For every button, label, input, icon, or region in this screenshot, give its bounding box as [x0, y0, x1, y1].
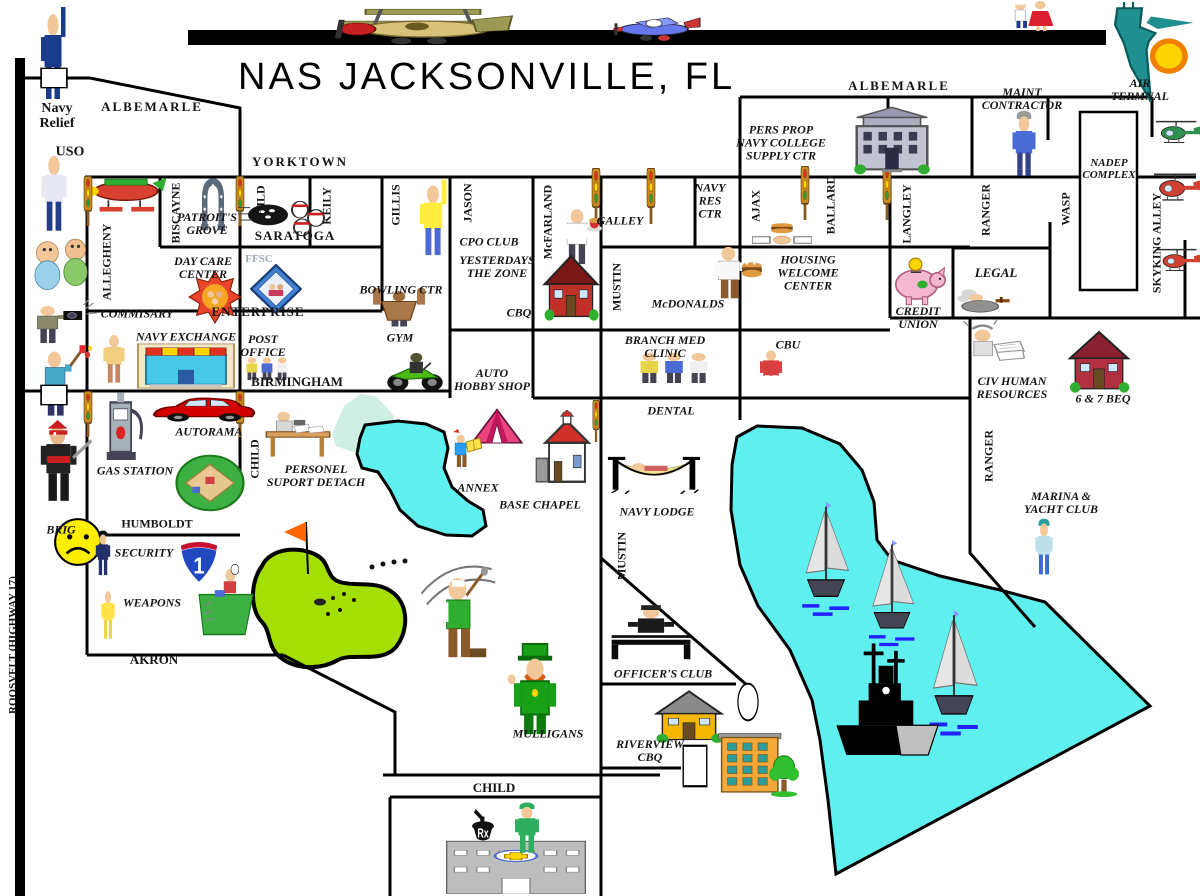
- label-ranger-2: RANGER: [983, 430, 996, 482]
- gate-north-icon: [40, 67, 68, 89]
- label-ballard: BALLARD: [825, 176, 838, 235]
- label-bowling-ctr: BOWLING CTR: [359, 284, 442, 297]
- traffic-light-5-icon: [795, 166, 815, 220]
- marina-sailor-icon: [1026, 518, 1062, 578]
- label-dental: DENTAL: [647, 405, 694, 418]
- label-beq: 6 & 7 BEQ: [1075, 393, 1130, 406]
- label-albemarle-right: ALBEMARLE: [848, 79, 950, 93]
- golf-hole: [314, 599, 326, 606]
- label-gillis: GILLIS: [390, 184, 403, 225]
- legal-judge-icon: [948, 284, 1018, 320]
- cbq-house-icon: [541, 252, 601, 322]
- golfer-icon: [416, 556, 506, 666]
- gas-pump-icon: [94, 388, 152, 468]
- nadep-complex-building: [1080, 112, 1137, 290]
- label-wasp: WASP: [1060, 192, 1073, 225]
- label-humboldt: HUMBOLDT: [121, 518, 192, 531]
- label-riverview: RIVERVIEW CBQ: [616, 738, 684, 764]
- tree-icon: [762, 750, 806, 798]
- label-base-chapel: BASE CHAPEL: [499, 499, 581, 512]
- label-mcfarland: McFARLAND: [542, 185, 555, 259]
- label-credit-union: CREDIT UNION: [896, 305, 941, 331]
- label-child-bottom: CHILD: [473, 781, 516, 795]
- label-keily: KEILY: [321, 187, 334, 225]
- label-officers-club: OFFICER'S CLUB: [614, 668, 712, 681]
- beq-house-icon: [1066, 328, 1132, 394]
- uso-sailor-icon: [28, 148, 80, 236]
- security-policeman-icon: [88, 530, 118, 578]
- pond-oval-icon: [736, 682, 760, 722]
- chapel-church-icon: [535, 410, 599, 488]
- label-civ-hr: CIV HUMAN RESOURCES: [977, 375, 1048, 401]
- label-ajax: AJAX: [750, 190, 763, 222]
- gate-south-icon: [40, 384, 68, 406]
- horseshoe-player-icon: [406, 178, 460, 260]
- label-maint-contractor: MAINT CONTRACTOR: [982, 86, 1062, 112]
- label-air-termnal: AIR TERMNAL: [1110, 77, 1170, 103]
- label-akron: AKRON: [130, 653, 178, 667]
- label-saratoga: SARATOGA: [255, 229, 335, 243]
- pond-rect-icon: [681, 744, 709, 788]
- label-marina: MARINA & YACHT CLUB: [1024, 490, 1098, 516]
- credit-union-piggy-icon: [890, 252, 948, 308]
- lodge-hammock-icon: [606, 446, 702, 498]
- label-galley: GALLEY: [597, 215, 644, 228]
- label-child-mid: CHILD: [249, 439, 262, 478]
- label-nadep-complex: NADEP COMPLEX: [1082, 158, 1135, 182]
- annex-camper-icon: [444, 428, 490, 478]
- battleship-icon: [824, 636, 948, 760]
- label-jason: JASON: [462, 183, 475, 222]
- label-navy-lodge: NAVY LODGE: [620, 506, 695, 519]
- base-map: NAS JACKSONVILLE, FL Navy ReliefUSOALBEM…: [0, 0, 1200, 896]
- blue-plane-icon: [606, 4, 706, 50]
- sailboat-2-icon: [860, 540, 924, 650]
- sailboat-1-icon: [793, 502, 859, 620]
- label-gym: GYM: [387, 332, 414, 345]
- helicopter-1-icon: [1154, 118, 1200, 154]
- commissary-shopper-icon: [92, 330, 136, 386]
- label-autorama: AUTORAMA: [175, 426, 242, 439]
- label-mustin-2: MUSTIN: [616, 532, 629, 580]
- weapons-guard-icon: [94, 586, 122, 642]
- label-navy-relief: Navy Relief: [40, 101, 75, 131]
- label-patriots-grove: PATROIT'S GROVE: [177, 211, 237, 237]
- navy-exchange-store-icon: [136, 342, 236, 390]
- navy-officer-icon: [28, 5, 78, 105]
- label-security: SECURITY: [115, 547, 174, 560]
- college-building-icon: [850, 106, 934, 178]
- mulligans-leprechaun-icon: [496, 642, 574, 740]
- label-post-office: POST OFFICE: [240, 333, 285, 359]
- cbu-cheerleader-icon: [748, 346, 794, 394]
- label-allegheny: ALLEGHENY: [101, 224, 114, 301]
- label-weapons: WEAPONS: [123, 597, 181, 610]
- sailor-couple-icon: [998, 0, 1064, 50]
- label-yesterdays: YESTERDAYS THE ZONE: [459, 254, 534, 280]
- motorcycle-icon: [382, 344, 448, 396]
- label-roosevelt-hwy: ROOSVELT (HIGHWAY 17): [8, 576, 20, 714]
- ballfield-slider-icon: [198, 562, 254, 636]
- hr-thinker-icon: [958, 320, 1030, 376]
- label-cbu: CBU: [776, 339, 801, 352]
- label-langley: LANGLEY: [901, 184, 914, 243]
- maint-worker-icon: [1000, 110, 1048, 180]
- label-child-top: CHILD: [255, 185, 268, 224]
- traffic-light-4-icon: [641, 168, 661, 224]
- label-ranger-1: RANGER: [980, 184, 993, 236]
- label-personel: PERSONEL SUPORT DETACH: [267, 463, 365, 489]
- label-mustin-1: MUSTIN: [611, 263, 624, 311]
- label-annex: ANNEX: [457, 482, 498, 495]
- label-birmingham: BIRMINGHAM: [251, 375, 343, 389]
- label-day-care: DAY CARE CENTER: [174, 255, 232, 281]
- label-navy-res-ctr: NAVY RES CTR: [694, 182, 725, 221]
- label-mulligans: MULLIGANS: [513, 728, 584, 741]
- club-pianist-icon: [610, 604, 692, 664]
- golf-green: [253, 550, 405, 668]
- label-skyking-alley: SKYKING ALLEY: [1151, 193, 1164, 293]
- label-mcdonalds: McDONALDS: [652, 298, 725, 311]
- traffic-light-1-icon: [78, 176, 98, 226]
- label-housing-welcome: HOUSING WELCOME CENTER: [777, 254, 838, 293]
- map-title: NAS JACKSONVILLE, FL: [238, 56, 735, 99]
- label-enterprise: ENTERPRISE: [211, 305, 304, 319]
- label-navy-exchange: NAVY EXCHANGE: [136, 331, 236, 344]
- golf-flag: [284, 522, 306, 542]
- photographer-icon: [26, 298, 98, 348]
- svg-text:Rx: Rx: [477, 827, 488, 841]
- label-albemarle-left: ALBEMARLE: [101, 100, 203, 114]
- label-pers-prop: PERS PROP NAVY COLLEGE SUPPLY CTR: [736, 124, 826, 163]
- label-branch-med: BRANCH MED CLINIC: [625, 334, 705, 360]
- babies-icon: [24, 224, 102, 304]
- label-legal: LEGAL: [975, 266, 1018, 280]
- label-cbq: CBQ: [507, 307, 532, 320]
- label-uso: USO: [56, 144, 85, 159]
- personnel-clerk-icon: [262, 408, 334, 462]
- label-biscayne: BISCAYNE: [170, 183, 183, 244]
- surgeon-icon: [502, 802, 552, 856]
- label-gas-station: GAS STATION: [97, 465, 173, 478]
- label-brig: BRIG: [46, 524, 75, 537]
- label-auto-hobby: AUTO HOBBY SHOP: [454, 367, 530, 393]
- label-yorktown: YORKTOWN: [252, 155, 348, 169]
- ballfield-icon: [172, 452, 248, 514]
- label-commisary: COMMISARY: [101, 308, 173, 321]
- label-ffsc: FFSC: [245, 254, 273, 266]
- label-cpo-club: CPO CLUB: [459, 236, 518, 249]
- pharmacy-mortar-icon: Rx: [466, 804, 500, 852]
